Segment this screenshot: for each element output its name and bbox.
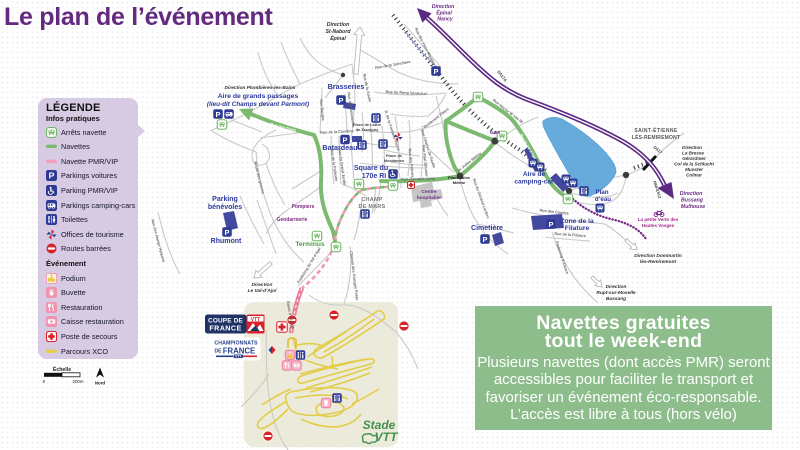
svg-text:Parking: Parking [212,196,238,203]
svg-text:Hautes Vosges: Hautes Vosges [642,223,675,228]
svg-text:Pompiers: Pompiers [292,204,315,210]
svg-text:Direction: Direction [327,22,349,28]
svg-text:Square du: Square du [354,165,388,172]
svg-text:VTT: VTT [235,355,241,359]
svg-text:P: P [483,235,488,244]
svg-text:La petite Verte des: La petite Verte des [638,217,679,222]
svg-text:Gare: Gare [490,130,501,135]
svg-text:Épinal: Épinal [436,9,452,17]
svg-text:Rue de la Filature: Rue de la Filature [554,232,586,238]
svg-text:Aire de grands passages: Aire de grands passages [218,93,299,100]
svg-text:P: P [549,220,554,229]
svg-text:FRANCE: FRANCE [209,324,241,333]
svg-text:Terminus: Terminus [295,241,325,248]
svg-text:P: P [216,110,221,119]
svg-text:Col de la Schlucht: Col de la Schlucht [674,162,714,167]
svg-text:P: P [434,67,439,76]
svg-text:Direction: Direction [682,145,702,150]
svg-text:Rue Baugra: Rue Baugra [319,99,325,121]
svg-text:DE MARS: DE MARS [359,204,386,210]
svg-text:Bussang: Bussang [681,198,704,204]
svg-text:hospitalier: hospitalier [417,195,441,201]
svg-text:Filature: Filature [565,225,590,232]
svg-text:P: P [49,171,55,181]
svg-text:P: P [225,228,230,237]
svg-text:Route des gravots: Route des gravots [253,161,265,194]
svg-text:Direction Plombières-les-Bains: Direction Plombières-les-Bains [225,85,296,91]
svg-text:Épinal: Épinal [330,34,346,42]
svg-text:Plan: Plan [595,189,608,196]
svg-text:Rupt-sur-Moselle: Rupt-sur-Moselle [596,290,636,296]
svg-text:Gendarmerie: Gendarmerie [277,217,308,223]
svg-text:Cimetière: Cimetière [471,225,503,232]
svg-text:Nancy: Nancy [437,17,454,23]
svg-text:Centre: Centre [421,189,437,195]
svg-text:Direction: Direction [432,4,454,10]
svg-text:D417A: D417A [496,69,508,82]
svg-text:Rue des étangs Hyquets: Rue des étangs Hyquets [150,219,165,263]
svg-text:Aire de: Aire de [523,171,546,178]
svg-text:P: P [339,96,344,105]
svg-text:(lieu-dit Champs devant Parmon: (lieu-dit Champs devant Parmont) [207,101,309,108]
svg-text:VTT: VTT [375,430,399,444]
svg-text:lès-Remiremont: lès-Remiremont [640,259,677,265]
svg-text:Rue du Général Leclerc: Rue du Général Leclerc [472,178,490,219]
svg-text:Le Val-d’Ajol: Le Val-d’Ajol [248,288,278,294]
svg-text:Brasseries: Brasseries [328,82,365,91]
svg-text:Direction Dommartin: Direction Dommartin [634,253,682,259]
svg-text:Rhumont: Rhumont [211,238,242,245]
svg-text:Faubourg d’Alsace: Faubourg d’Alsace [555,241,569,275]
svg-text:de Tassigny: de Tassigny [356,127,380,132]
svg-text:Nord: Nord [95,381,106,386]
svg-text:Direction: Direction [606,284,627,290]
svg-text:La Bresse: La Bresse [682,151,704,156]
svg-text:Munster: Munster [685,167,703,172]
svg-text:Gérardmer: Gérardmer [682,156,706,161]
svg-text:bénévoles: bénévoles [208,204,242,211]
svg-text:Bussang: Bussang [606,296,626,302]
svg-text:Méline: Méline [453,180,466,185]
svg-text:Rue Hector W 10e RI: Rue Hector W 10e RI [492,98,524,124]
svg-text:Direction: Direction [680,191,702,197]
svg-text:VTT: VTT [251,317,260,323]
svg-text:170e RI: 170e RI [362,173,387,180]
svg-text:LÈS-REMIREMONT: LÈS-REMIREMONT [632,133,680,141]
svg-text:Mulhouse: Mulhouse [681,204,705,210]
svg-text:DE: DE [215,349,223,355]
svg-text:SAINT-ÉTIENNE: SAINT-ÉTIENNE [634,126,678,134]
svg-text:d’eau: d’eau [595,196,611,203]
svg-text:Direction: Direction [252,282,273,288]
svg-text:Échelle: Échelle [53,365,71,373]
svg-text:Colmar: Colmar [686,173,702,178]
svg-text:camping-car: camping-car [514,179,554,186]
svg-text:Rue de la Courtine: Rue de la Courtine [320,129,354,135]
svg-text:Mesdames: Mesdames [384,158,405,163]
svg-text:200m: 200m [73,379,84,384]
svg-text:0: 0 [43,379,46,384]
svg-text:Rue de la Palissée: Rue de la Palissée [330,148,339,181]
svg-text:CHAMP: CHAMP [361,197,382,203]
svg-text:Zone de la: Zone de la [560,218,594,225]
svg-text:St-Nabord: St-Nabord [325,29,351,35]
